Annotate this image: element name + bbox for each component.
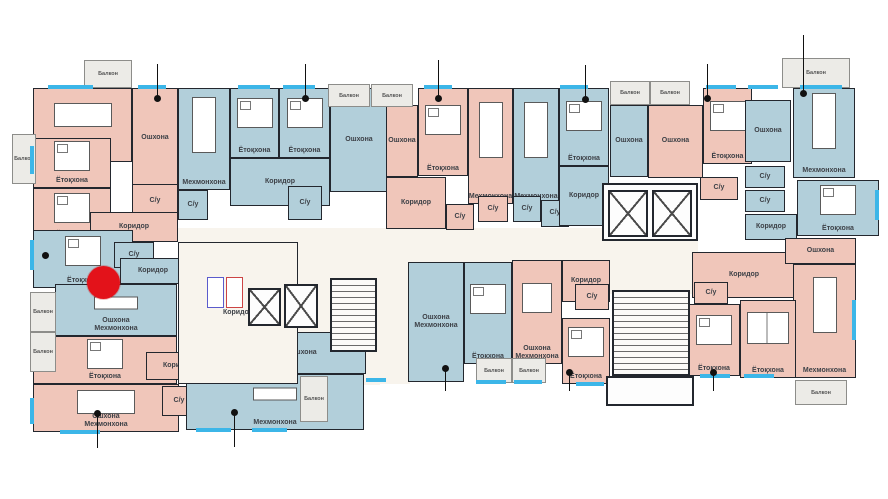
window-strip (30, 240, 34, 270)
room-label: Коридор (729, 271, 759, 279)
balcony: Балкон (371, 84, 413, 107)
room-label: Ошхона (754, 127, 781, 135)
table-icon (192, 97, 216, 153)
room-living-se: Мехмонхона (793, 264, 856, 378)
room-label: С/у (522, 205, 533, 213)
window-strip (60, 430, 100, 434)
room-corridor-b: Коридор (386, 177, 446, 229)
bed-icon (747, 312, 789, 344)
room-kitchen-f: Ошхона (745, 100, 791, 162)
window-strip (706, 85, 736, 89)
room-kitchen-nw: Ошхона (132, 88, 178, 188)
room-kitchen-living-cm: Ошхона Мехмонхона (408, 262, 464, 382)
room-living-c: Мехмонхона (513, 88, 559, 204)
room-bath-b2: С/у (478, 196, 508, 222)
section-line (569, 375, 570, 391)
window-strip (576, 382, 604, 386)
room-bedroom-se2: Ётоқхона (740, 300, 796, 378)
staircase-icon (612, 290, 690, 376)
room-label: Ошхона (662, 137, 689, 145)
elevator-shaft-icon (652, 190, 692, 237)
room-corridor-f: Коридор (745, 214, 797, 240)
room-label: Коридор (569, 192, 599, 200)
room-label: Мехмонхона (802, 167, 845, 175)
window-strip (30, 398, 34, 424)
room-label: С/у (455, 213, 466, 221)
room-label: Ошхона (615, 137, 642, 145)
window-strip (30, 146, 34, 174)
balcony-label: Балкон (339, 93, 359, 99)
room-label: С/у (488, 205, 499, 213)
room-bedroom-b: Ётоқхона (418, 88, 468, 176)
room-label: Ётоқхона (570, 373, 602, 381)
staircase-icon (330, 278, 377, 352)
bed-icon (425, 105, 461, 135)
window-strip (875, 190, 879, 220)
chute-blue-icon (207, 277, 224, 308)
window-strip (252, 428, 287, 432)
room-label: Ошхона Мехмонхона (414, 314, 457, 330)
balcony: Балкон (650, 81, 690, 105)
balcony: Балкон (328, 84, 370, 107)
window-strip (48, 85, 93, 89)
room-label: Ётоқхона (427, 165, 459, 173)
room-bath-a2: С/у (288, 186, 322, 220)
balcony-label: Балкон (382, 93, 402, 99)
room-label: Ошхона (141, 134, 168, 142)
bed-icon (54, 193, 90, 223)
section-line (234, 415, 235, 447)
room-kitchen-b: Ошхона (386, 105, 418, 177)
room-bath-e: С/у (700, 177, 738, 200)
room-kitchen-e: Ошхона (648, 105, 703, 178)
room-label: С/у (150, 197, 161, 205)
window-strip (744, 374, 774, 378)
room-label: Ошхона (807, 247, 834, 255)
section-line (305, 64, 306, 98)
balcony: Балкон (84, 60, 132, 88)
balcony-label: Балкон (806, 70, 826, 76)
window-strip (366, 378, 386, 382)
room-label: Ётоқхона (568, 155, 600, 163)
balcony: Балкон (30, 332, 56, 372)
table-icon (77, 390, 135, 414)
room-bath-a1: С/у (178, 190, 208, 220)
section-line (585, 65, 586, 99)
lobby-area (378, 258, 410, 384)
room-kitchen-living-cp: Ошхона Мехмонхона (512, 260, 562, 364)
room-label: Коридор (401, 199, 431, 207)
room-label: Коридор (265, 178, 295, 186)
room-label: Ётоқхона (712, 153, 744, 161)
elevator-shaft-icon (248, 288, 281, 326)
bed-icon (566, 101, 602, 131)
room-label: Мехмонхона (803, 367, 846, 375)
bed-icon (54, 141, 90, 171)
room-bedroom-a1: Ётоқхона (230, 88, 279, 158)
balcony-label: Балкон (98, 71, 118, 77)
lobby-area (598, 238, 698, 294)
room-label: Ошхона (388, 137, 415, 145)
section-line (445, 371, 446, 391)
room-bath-b1: С/у (446, 204, 474, 230)
bed-icon (237, 98, 273, 128)
window-strip (476, 380, 506, 384)
room-bath-f1: С/у (745, 166, 785, 188)
bed-icon (87, 339, 123, 369)
bed-icon (568, 327, 604, 357)
table-icon (54, 103, 112, 127)
room-living-f: Мехмонхона (793, 88, 855, 178)
balcony-label: Балкон (811, 390, 831, 396)
room-label: Ошхона Мехмонхона (94, 317, 137, 333)
window-strip (800, 85, 842, 89)
room-label: Коридор (756, 223, 786, 231)
balcony-label: Балкон (519, 368, 539, 374)
section-line (157, 64, 158, 98)
window-strip (560, 85, 588, 89)
room-kitchen-se: Ошхона (785, 238, 856, 264)
chute-red-icon (226, 277, 243, 308)
table-icon (524, 102, 548, 158)
room-label: С/у (300, 199, 311, 207)
bed-icon (710, 101, 746, 131)
window-strip (748, 85, 778, 89)
room-label: Ётоқхона (89, 373, 121, 381)
room-label: С/у (760, 197, 771, 205)
room-label: С/у (188, 201, 199, 209)
elevator-shaft-icon (608, 190, 648, 237)
room-label: С/у (174, 397, 185, 405)
elevator-shaft-icon (284, 284, 318, 328)
room-label: Ётоқхона (289, 147, 321, 155)
room-bedroom-se1: Ётоқхона (688, 304, 740, 376)
balcony-label: Балкон (660, 90, 680, 96)
room-bedroom-cm: Ётоқхона (464, 262, 512, 364)
balcony-label: Балкон (484, 368, 504, 374)
window-strip (238, 85, 270, 89)
section-line (438, 60, 439, 98)
balcony: Балкон (30, 292, 56, 332)
room-label: С/у (706, 289, 717, 297)
bed-icon (820, 185, 856, 215)
table-icon (522, 283, 552, 313)
room-label: Ошхона Мехмонхона (84, 413, 127, 429)
window-strip (514, 380, 542, 384)
balcony-label: Балкон (33, 309, 53, 315)
room-corridor-w1: Коридор (120, 258, 186, 284)
bed-icon (65, 236, 101, 266)
sofa-icon (253, 388, 297, 401)
window-strip (138, 85, 166, 89)
room-bath-cp: С/у (575, 284, 609, 310)
section-dot (42, 252, 49, 259)
room-bath-se: С/у (694, 282, 728, 304)
balcony-label: Балкон (304, 396, 324, 402)
table-icon (479, 102, 503, 158)
room-bedroom-f: Ётоқхона (797, 180, 879, 236)
bed-icon (696, 315, 732, 345)
window-strip (196, 428, 231, 432)
section-line (97, 416, 98, 448)
balcony: Балкон (795, 380, 847, 405)
room-living-a: Мехмонхона (178, 88, 230, 190)
room-bedroom-nw-1: Ётоқхона (33, 138, 111, 188)
room-label: Ётоқхона (56, 177, 88, 185)
room-kitchen-d: Ошхона (610, 105, 648, 177)
entrance-vestibule (606, 376, 694, 406)
section-line (707, 64, 708, 98)
table-icon (812, 93, 836, 149)
balcony-label: Балкон (620, 90, 640, 96)
room-bath-c1: С/у (513, 196, 541, 222)
window-strip (283, 85, 315, 89)
room-label: Ётоқхона (822, 225, 854, 233)
room-label: С/у (714, 184, 725, 192)
room-label: С/у (760, 173, 771, 181)
window-strip (852, 300, 856, 340)
balcony: Балкон (300, 376, 328, 422)
room-label: Мехмонхона (182, 179, 225, 187)
room-bath-f2: С/у (745, 190, 785, 212)
room-label: С/у (587, 293, 598, 301)
section-line (713, 375, 714, 391)
room-label: Ошхона (345, 136, 372, 144)
section-line (803, 35, 804, 93)
balcony: Балкон (782, 58, 850, 88)
room-label: Мехмонхона (253, 419, 296, 427)
room-kitchen-living-sw: Ошхона Мехмонхона (33, 384, 179, 432)
floor-plan: МехмонхонаОшхонаЁтоқхонаЁтоқхонаС/уКорид… (0, 0, 888, 499)
balcony: Балкон (610, 81, 650, 105)
room-label: Коридор (138, 267, 168, 275)
room-living-b: Мехмонхона (468, 88, 513, 204)
bed-icon (287, 98, 323, 128)
balcony-label: Балкон (33, 349, 53, 355)
room-label: Ётоқхона (239, 147, 271, 155)
selected-apartment-marker[interactable] (87, 266, 120, 299)
table-icon (813, 277, 837, 333)
bed-icon (470, 284, 506, 314)
